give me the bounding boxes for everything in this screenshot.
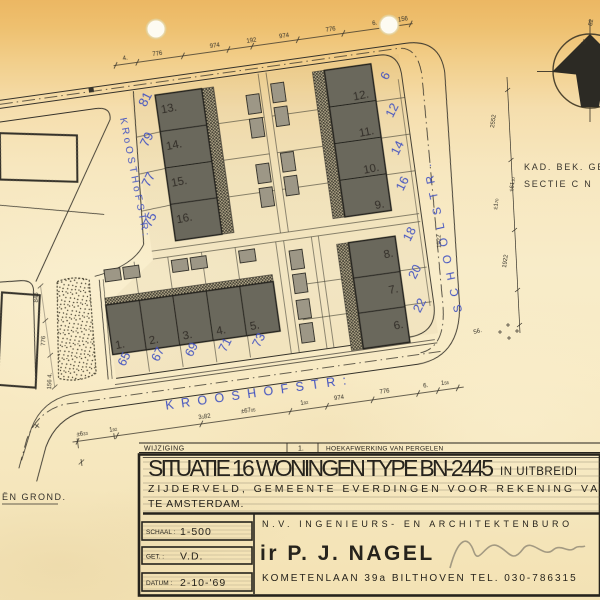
- svg-text:HOEKAFWERKING VAN PERGELEN: HOEKAFWERKING VAN PERGELEN: [326, 446, 443, 453]
- svg-text:776: 776: [41, 335, 47, 346]
- svg-text:KOMETENLAAN 39a BILTHOVEN T: KOMETENLAAN 39a BILTHOVEN TEL. 030-78631…: [262, 573, 578, 584]
- svg-text:2-10-'69: 2-10-'69: [180, 577, 226, 589]
- svg-text:N.V. INGENIEURS- EN ARCHITEKTE: N.V. INGENIEURS- EN ARCHITEKTENBURO: [262, 519, 573, 529]
- svg-text:IN UITBREIDI: IN UITBREIDI: [500, 466, 578, 478]
- svg-text:846: 846: [34, 292, 40, 303]
- svg-text:1-500: 1-500: [180, 526, 212, 538]
- svg-text:ZIJDERVELD, GEMEENTE EVERDINGE: ZIJDERVELD, GEMEENTE EVERDINGEN VOOR REK…: [148, 483, 598, 495]
- svg-text:ir P. J. NAGEL: ir P. J. NAGEL: [260, 542, 435, 565]
- svg-text:1922: 1922: [436, 234, 443, 248]
- svg-text:WIJZIGING: WIJZIGING: [144, 446, 185, 453]
- svg-text:TE AMSTERDAM.: TE AMSTERDAM.: [148, 498, 244, 510]
- svg-text:156 4.: 156 4.: [47, 372, 54, 389]
- svg-text:1.: 1.: [298, 446, 304, 453]
- svg-text:DATUM :: DATUM :: [146, 580, 172, 587]
- svg-text:GET. :: GET. :: [146, 554, 164, 561]
- svg-text:KAD. BEK. GE: KAD. BEK. GE: [524, 162, 600, 172]
- svg-text:SCHAAL :: SCHAAL :: [146, 529, 176, 536]
- svg-text:V.D.: V.D.: [180, 551, 203, 563]
- svg-text:SITUATIE 16 WONINGEN TYPE BN-2: SITUATIE 16 WONINGEN TYPE BN-2445: [148, 455, 495, 481]
- svg-text:ËN GROND.: ËN GROND.: [2, 492, 67, 502]
- svg-text:SECTIE C N: SECTIE C N: [524, 179, 593, 189]
